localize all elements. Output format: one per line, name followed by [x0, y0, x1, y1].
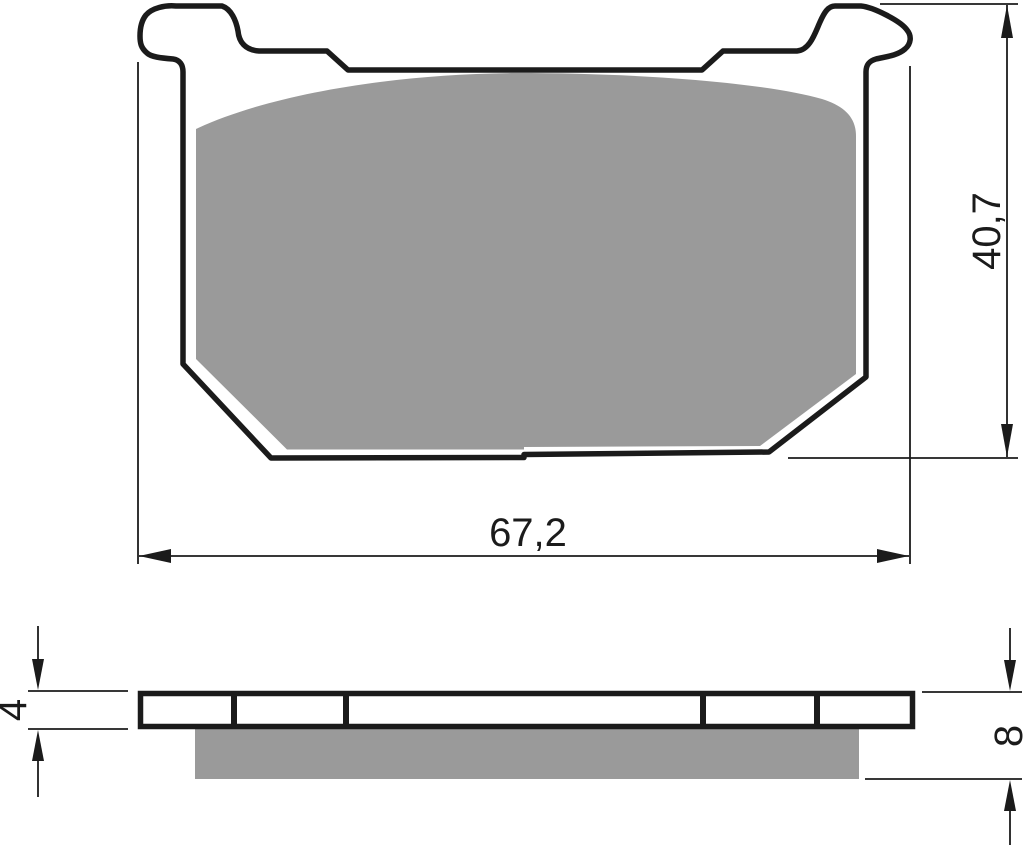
technical-drawing-canvas: 67,2 40,7 [0, 0, 1024, 847]
backing-plate-side-view [141, 694, 913, 727]
height-arrow-down-icon [1001, 424, 1013, 457]
width-dimension-label: 67,2 [489, 511, 567, 555]
total-thickness-arrow-up-icon [1004, 780, 1016, 811]
plate-thickness-arrow-up-icon [32, 730, 44, 761]
total-thickness-arrow-down-icon [1004, 660, 1016, 691]
dimension-total-thickness: 8 [865, 628, 1024, 845]
dimension-plate-thickness: 4 [0, 626, 128, 797]
plate-thickness-label: 4 [0, 699, 35, 721]
friction-material-top-view [196, 73, 856, 450]
plate-thickness-arrow-down-icon [32, 659, 44, 690]
height-arrow-up-icon [1001, 5, 1013, 38]
total-thickness-label: 8 [987, 725, 1024, 747]
height-dimension-label: 40,7 [965, 192, 1009, 270]
friction-material-side-view [195, 729, 859, 779]
width-arrow-right-icon [877, 549, 909, 563]
side-view [141, 694, 913, 780]
width-arrow-left-icon [139, 549, 171, 563]
top-view [140, 6, 910, 458]
brake-pad-drawing: 67,2 40,7 [0, 0, 1024, 847]
